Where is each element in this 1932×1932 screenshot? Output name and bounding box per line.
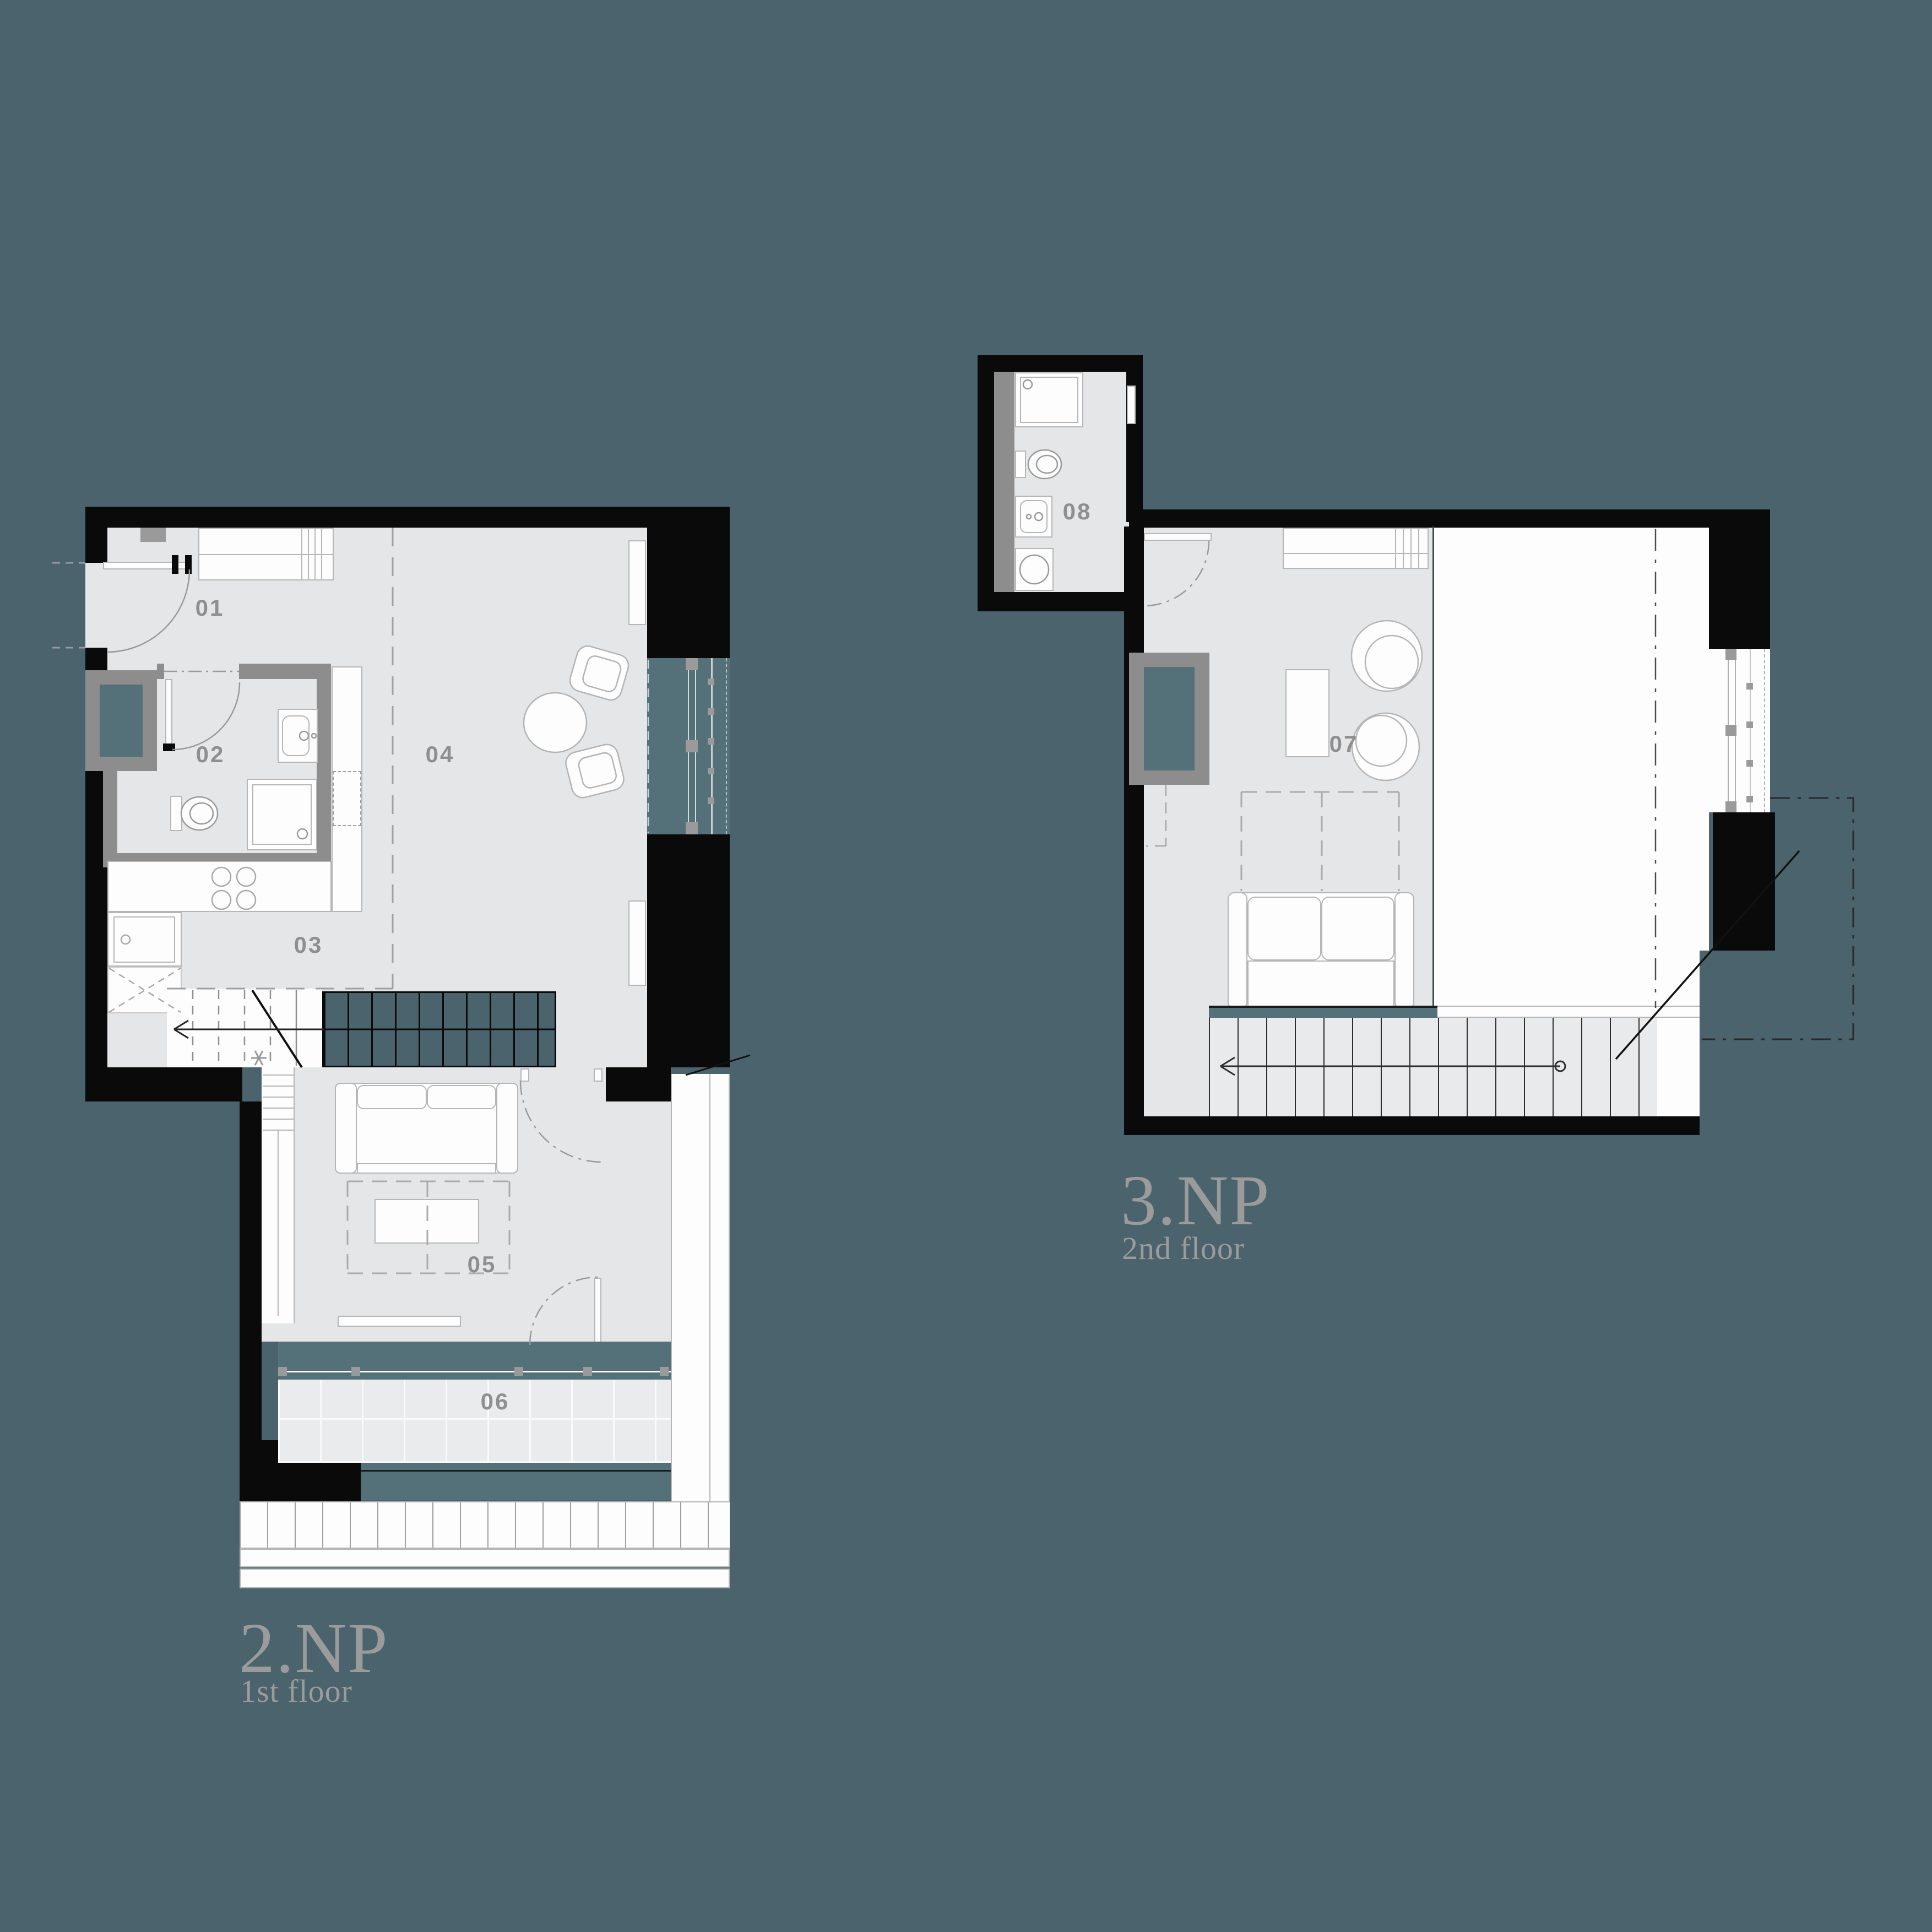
railing-post <box>660 1367 669 1376</box>
door-jamb <box>594 1068 603 1082</box>
stair-glass-rail <box>1209 1006 1437 1018</box>
wall-top <box>85 507 730 528</box>
bed-front <box>1247 960 1394 1008</box>
bath8-lining <box>994 372 1014 592</box>
room-label-04: 04 <box>426 741 455 768</box>
window-outer-dash <box>726 658 727 834</box>
kitchen-sink-inner <box>113 916 175 963</box>
lightwell-opening <box>100 685 143 757</box>
floor-subtitle-2np: 1st floor <box>240 1675 352 1707</box>
walkway-line <box>709 1074 710 1501</box>
door-jamb <box>185 555 192 574</box>
bath8-wall-top <box>978 355 1143 372</box>
entry-threshold <box>85 563 107 648</box>
wall-left-living <box>240 1101 262 1440</box>
room-label-08: 08 <box>1063 498 1092 525</box>
toilet-tank <box>170 796 182 831</box>
terrace-glass-line <box>361 1470 671 1472</box>
wall-left-upper <box>85 528 107 563</box>
sofa-armrest <box>335 1083 357 1174</box>
radiator <box>628 540 646 625</box>
window-outer-dash <box>1764 649 1765 812</box>
deck-boards <box>240 1501 730 1549</box>
room-label-05: 05 <box>468 1251 497 1278</box>
stair-landing-right <box>1657 1018 1700 1116</box>
window-mullion <box>1725 801 1736 812</box>
bath8-door-leaf <box>1144 533 1212 541</box>
wall-door-pier <box>606 1067 671 1101</box>
coffee-table <box>375 1199 479 1244</box>
railing-line <box>278 1371 671 1372</box>
radiator <box>628 900 646 986</box>
window-tick <box>708 768 714 774</box>
room-label-02: 02 <box>196 741 225 768</box>
sink-basin <box>1020 500 1048 533</box>
floor-subtitle-3np: 2nd floor <box>1122 1233 1245 1265</box>
floor-plan-sheet: 01 02 03 04 05 06 07 08 2.NP 1st floor 3… <box>0 0 1932 1932</box>
window-tick <box>708 708 714 715</box>
window-tick <box>708 797 714 804</box>
railing-post <box>514 1367 523 1376</box>
deck-step <box>240 1569 730 1588</box>
sofa-cushion <box>427 1085 496 1109</box>
bath-door-leaf <box>165 679 172 751</box>
railing-post <box>583 1367 592 1376</box>
sofa-cushion <box>357 1085 427 1109</box>
wall-left <box>1124 527 1144 1135</box>
appliance-dashed <box>333 771 361 826</box>
bath-wall-top-stub <box>157 664 164 679</box>
wall-right-upper <box>1709 527 1770 649</box>
window-track-line <box>1750 649 1751 812</box>
stair-landing-left <box>1144 1008 1209 1116</box>
doormat <box>140 528 166 542</box>
railing-post <box>351 1367 360 1376</box>
washing-machine <box>1015 548 1054 591</box>
bed-cushion <box>1321 897 1394 960</box>
terrace-glass-south <box>361 1463 671 1500</box>
bed-armrest <box>1228 892 1247 1009</box>
lightwell-opening <box>1144 667 1195 770</box>
bath8-wall-bottom <box>978 592 1143 611</box>
railing-post <box>278 1367 287 1376</box>
window-tick <box>1746 683 1753 690</box>
window-mullion <box>686 740 698 752</box>
sink-basin <box>282 715 310 756</box>
terrace-tiles <box>278 1380 671 1463</box>
sofa-front <box>357 1163 496 1174</box>
window-mullion <box>1725 725 1736 736</box>
wall-top <box>1129 509 1770 528</box>
window-mullion <box>1725 649 1736 660</box>
sofa-armrest <box>496 1083 518 1174</box>
window-tick <box>1746 760 1753 767</box>
toilet-tank <box>1015 451 1026 478</box>
staircase <box>1209 1018 1657 1116</box>
door-jamb <box>172 555 178 574</box>
window-mullion <box>686 822 698 834</box>
stair-strip <box>262 1067 295 1323</box>
glass-front <box>278 1342 671 1380</box>
room-label-06: 06 <box>481 1388 510 1415</box>
room-label-01: 01 <box>196 595 225 621</box>
desk <box>1285 669 1329 757</box>
corner-cutout <box>1700 951 1775 1116</box>
bed-cushion <box>1247 897 1321 960</box>
wall-right-upper <box>647 528 730 658</box>
deck-step <box>240 1549 730 1567</box>
bath-wall-right <box>317 664 331 867</box>
side-walkway <box>671 1074 730 1501</box>
room-label-07: 07 <box>1329 731 1359 757</box>
wall-right-lower <box>647 834 730 1067</box>
bath-wall-left <box>103 770 117 867</box>
wardrobe-midline <box>1284 553 1428 554</box>
window-tick <box>708 679 714 685</box>
bath8-wall-left <box>978 355 994 611</box>
door-jamb <box>520 1068 529 1082</box>
wall-bottom-left <box>85 1067 242 1101</box>
window-tick <box>1746 796 1753 802</box>
floor-divider-line <box>1432 527 1434 1008</box>
terrace-door-leaf <box>594 1278 601 1344</box>
room-label-03: 03 <box>294 932 323 958</box>
bed-armrest <box>1394 892 1414 1009</box>
stair-edge-band <box>1437 1006 1700 1018</box>
wardrobe-midline <box>199 554 333 555</box>
wardrobe <box>1283 528 1429 569</box>
wall-bottom <box>1124 1116 1700 1135</box>
stair-flight-upper <box>167 989 322 1067</box>
shower-inner <box>252 784 312 845</box>
stairwell-void <box>322 991 556 1067</box>
window-tick <box>708 738 714 745</box>
window-mullion <box>686 658 698 670</box>
window-tick <box>1746 721 1753 728</box>
bath8-wall-right <box>1126 355 1143 522</box>
window-east <box>1705 649 1770 812</box>
wall-right-lower <box>1713 812 1775 951</box>
shower-inner <box>1020 377 1078 423</box>
radiator <box>1127 386 1136 424</box>
floor-title-3np: 3.NP <box>1121 1165 1271 1236</box>
kitchen-counter <box>107 861 332 912</box>
tv-bench <box>338 1316 461 1327</box>
door-jamb <box>163 744 175 751</box>
